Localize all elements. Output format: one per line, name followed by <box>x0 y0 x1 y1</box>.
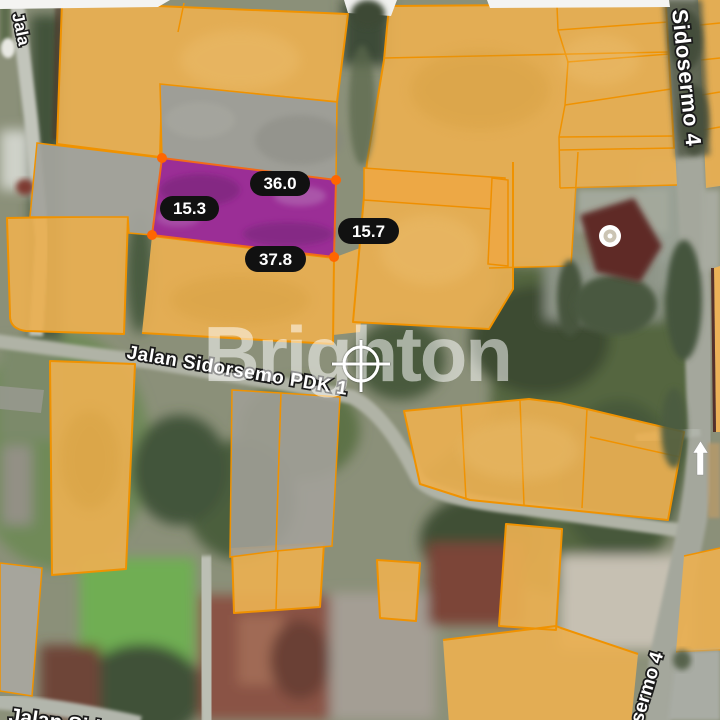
svg-text:36.0: 36.0 <box>263 174 296 193</box>
svg-text:37.8: 37.8 <box>259 250 292 269</box>
svg-text:Brighton: Brighton <box>203 310 510 398</box>
svg-text:15.3: 15.3 <box>173 199 206 218</box>
svg-text:15.7: 15.7 <box>352 222 385 241</box>
